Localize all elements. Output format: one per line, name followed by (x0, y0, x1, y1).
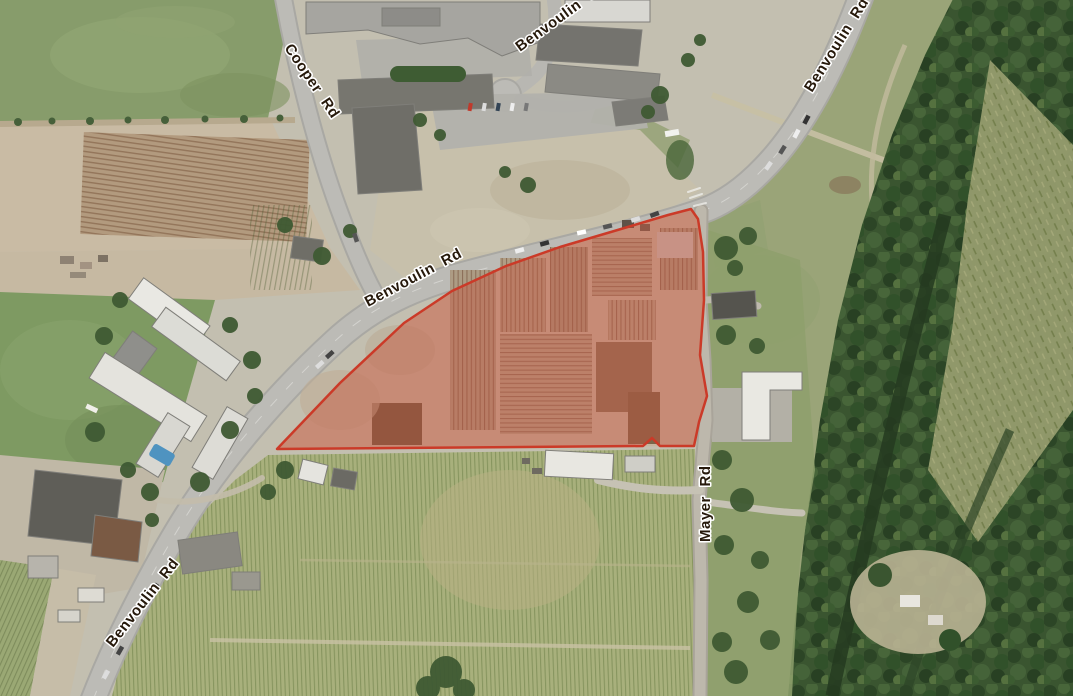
building (352, 104, 422, 194)
building (711, 290, 757, 319)
barn (544, 450, 613, 480)
building (331, 468, 358, 490)
aerial-map[interactable]: Cooper Rd Benvoulin C Benvoulin Rd Benvo… (0, 0, 1073, 696)
road-label-mayer-rd: Mayer Rd (697, 465, 714, 542)
building (91, 515, 142, 562)
